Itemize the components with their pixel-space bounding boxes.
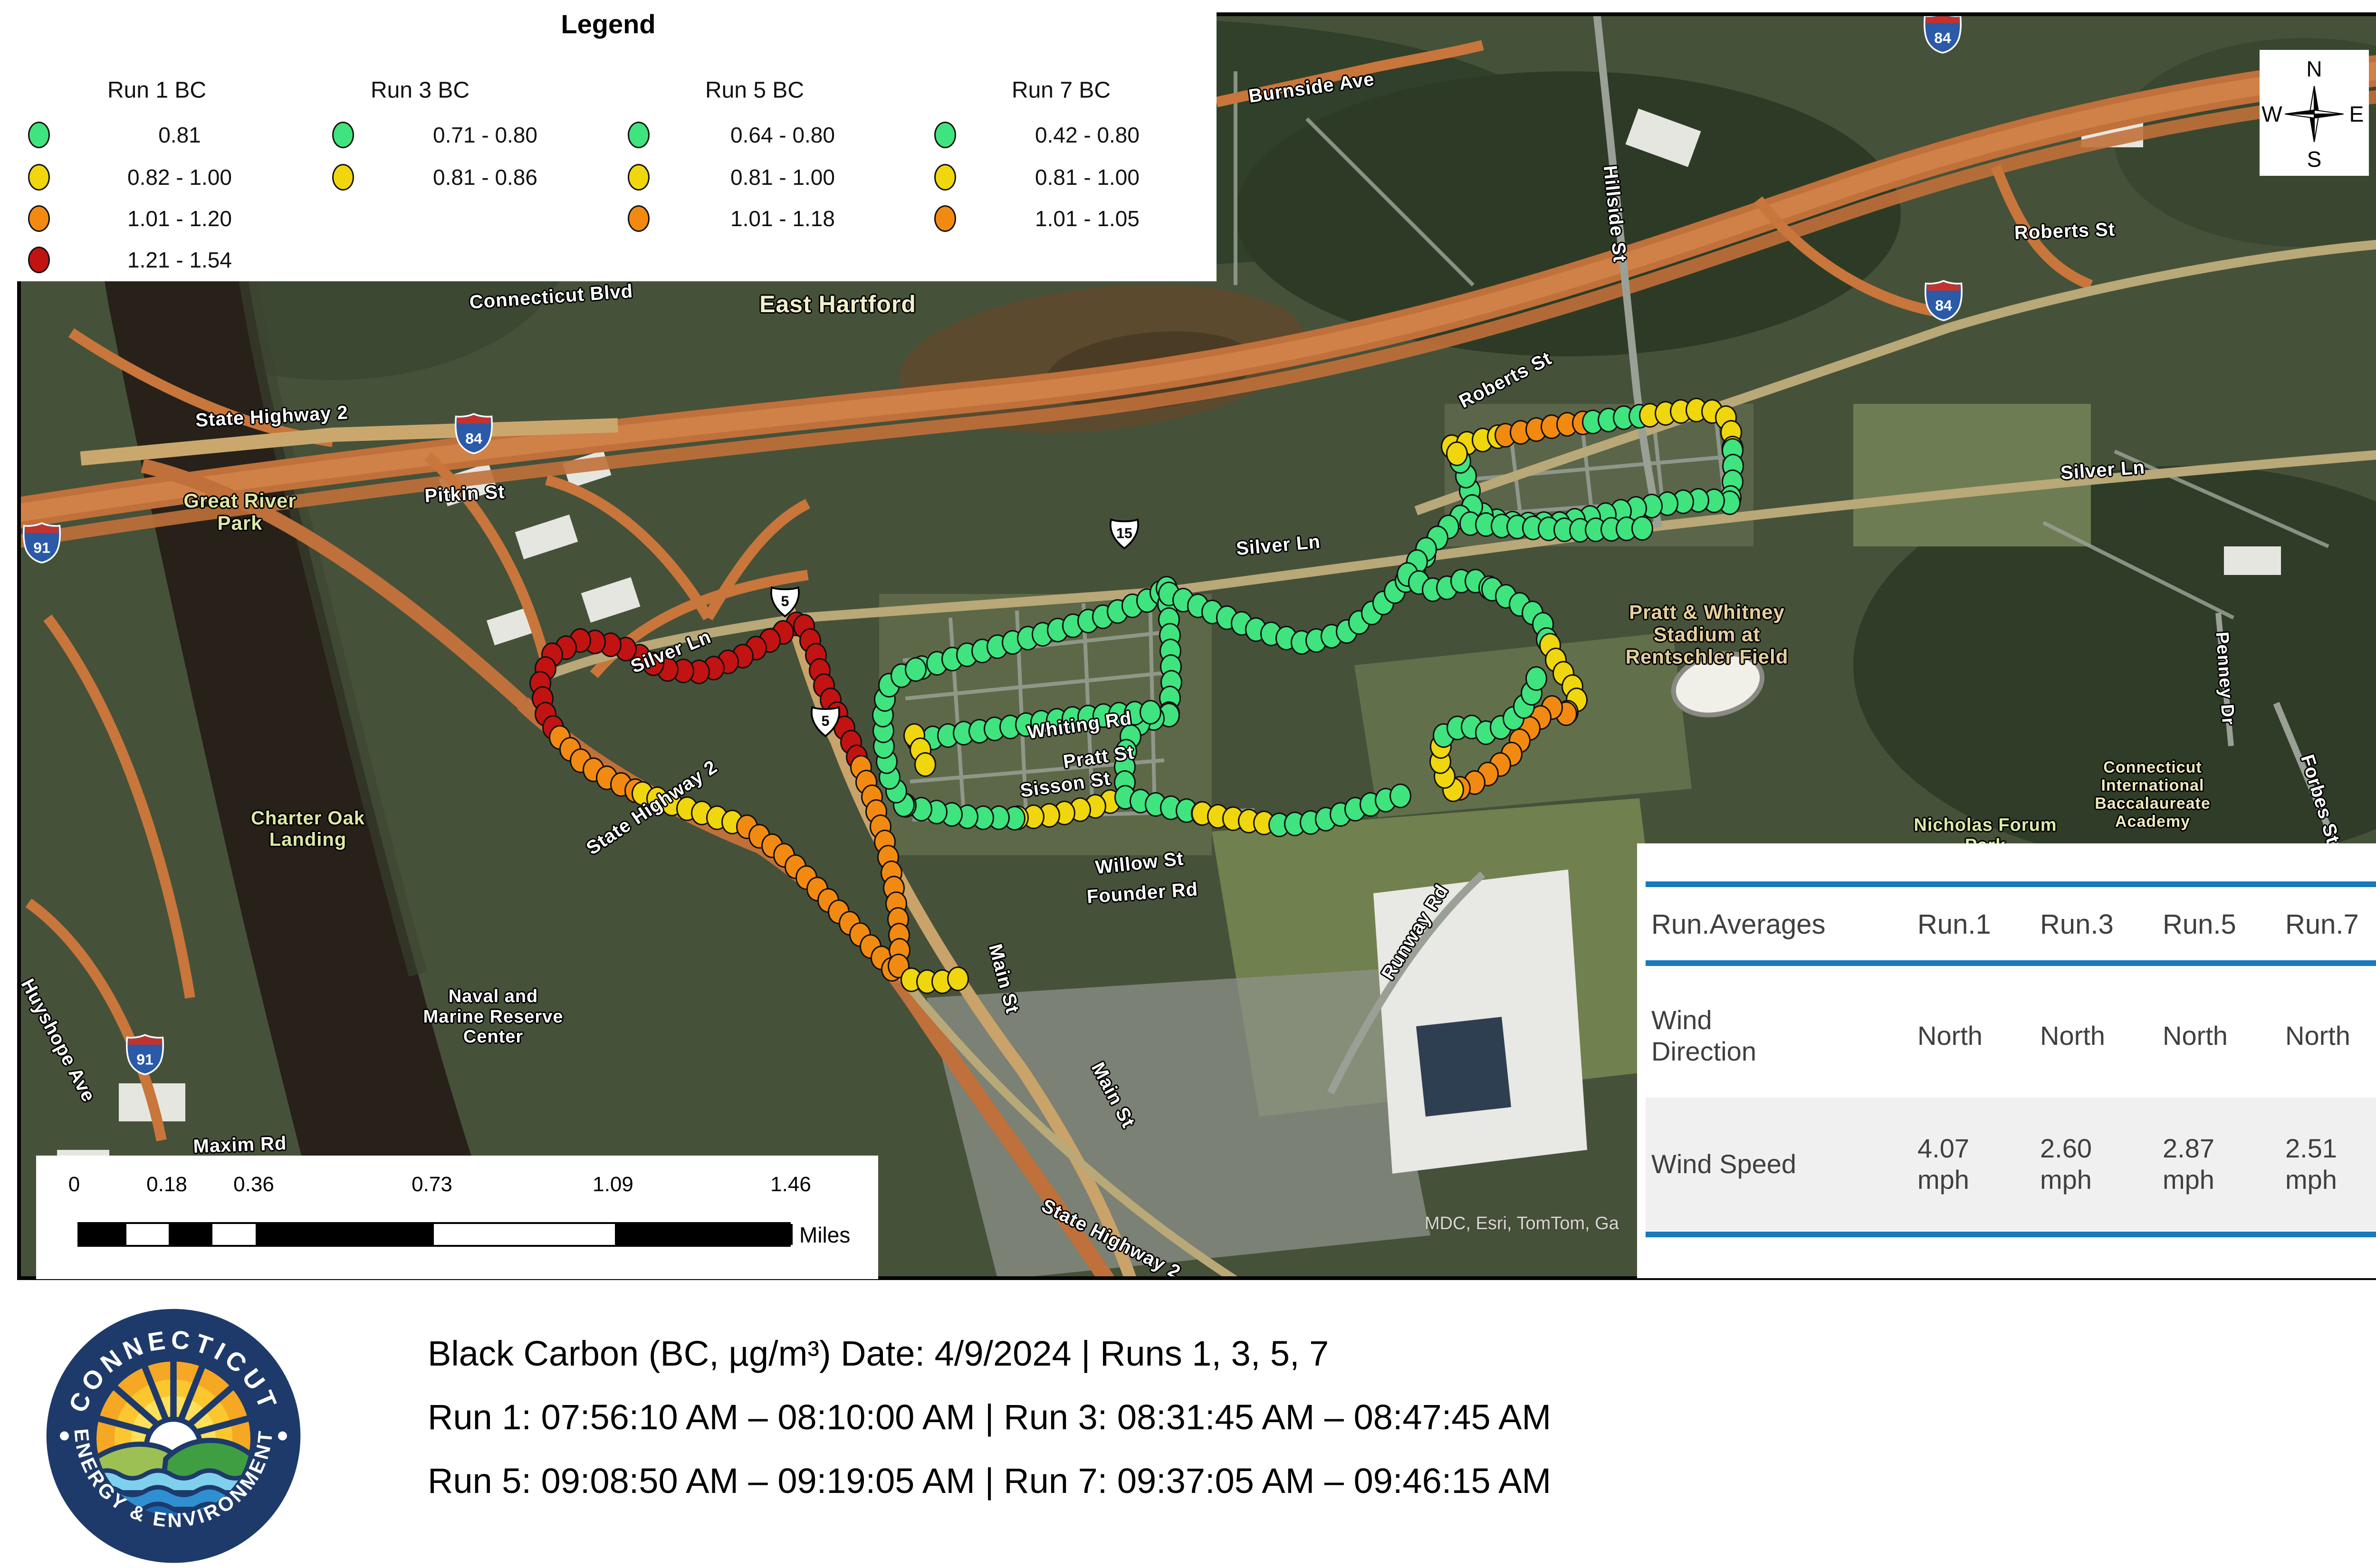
scale-tick-label: 0.36 — [233, 1173, 274, 1196]
scale-bar-segment — [615, 1224, 793, 1245]
map-label: Forbes St — [2296, 752, 2343, 846]
map-label: East Hartford — [759, 291, 916, 317]
legend-range-label: 0.71 - 0.80 — [433, 122, 537, 148]
legend-swatch — [332, 122, 354, 148]
legend-swatch — [628, 205, 650, 232]
scale-bar: 00.180.360.731.091.46 Miles — [36, 1156, 878, 1279]
scale-tick-label: 0 — [68, 1173, 80, 1196]
legend-range-label: 0.81 - 1.00 — [730, 164, 835, 190]
table-header-cell-3: Run.5 — [2163, 889, 2285, 960]
wind-direction-value-0: North — [1917, 981, 2040, 1090]
map-label: Sisson St — [1019, 768, 1112, 802]
map-label: State Highway 2 — [195, 402, 349, 431]
legend-column-header-run-0: Run 1 BC — [107, 77, 206, 104]
map-label: Runway Rd — [1378, 881, 1453, 984]
map-label: Main St — [1087, 1059, 1139, 1132]
legend-range-label: 0.82 - 1.00 — [127, 164, 232, 190]
caption-line-2: Run 1: 07:56:10 AM – 08:10:00 AM | Run 3… — [428, 1386, 1551, 1449]
map-label: Maxim Rd — [193, 1133, 287, 1157]
scale-bar-segment — [126, 1224, 169, 1245]
map-label: Main St — [984, 942, 1023, 1016]
scale-tick-label: 1.09 — [593, 1173, 633, 1196]
scale-bar-band — [77, 1222, 791, 1247]
caption-line-3: Run 5: 09:08:50 AM – 09:19:05 AM | Run 7… — [428, 1449, 1551, 1513]
legend-range-label: 1.01 - 1.20 — [127, 206, 232, 231]
scale-tick-label: 0.73 — [412, 1173, 452, 1196]
legend-swatch — [628, 122, 650, 148]
legend-swatch — [934, 122, 956, 148]
map-label: Silver Ln — [1235, 531, 1321, 560]
map-label: Connecticut International Baccalaureate … — [2095, 758, 2211, 831]
figure-caption: Black Carbon (BC, µg/m³) Date: 4/9/2024 … — [428, 1322, 1551, 1513]
wind-speed-value-1: 2.60 mph — [2040, 1102, 2163, 1226]
map-label: Roberts St — [2014, 219, 2116, 244]
legend-range-label: 0.81 — [158, 122, 201, 148]
map-label: Charter Oak Landing — [251, 808, 365, 851]
legend-swatch — [28, 164, 50, 191]
scale-bar-unit: Miles — [799, 1222, 850, 1248]
legend-swatch — [28, 122, 50, 148]
table-label-wind-direction: Wind Direction — [1651, 981, 1917, 1090]
legend-column-header-run-1: Run 3 BC — [371, 77, 469, 104]
table-bottom-rule — [1646, 1232, 2376, 1237]
legend-range-label: 0.81 - 0.86 — [433, 164, 537, 190]
map-label: Pratt & Whitney Stadium at Rentschler Fi… — [1626, 601, 1789, 668]
legend-swatch — [934, 205, 956, 232]
table-header-cell-4: Run.7 — [2285, 889, 2376, 960]
ct-energy-environment-logo: CONNECTICUT ENERGY & ENVIRONMENT — [45, 1308, 302, 1564]
wind-direction-value-2: North — [2163, 981, 2285, 1090]
scale-bar-segment — [256, 1224, 434, 1245]
table-header-cell-2: Run.3 — [2040, 889, 2163, 960]
wind-direction-value-3: North — [2285, 981, 2376, 1090]
map-label: Silver Ln — [628, 626, 714, 678]
legend-range-label: 0.42 - 0.80 — [1035, 122, 1140, 148]
legend-column-header-run-3: Run 7 BC — [1012, 77, 1111, 104]
compass-south-label: S — [2307, 146, 2322, 172]
map-label: Whiting Rd — [1026, 708, 1133, 743]
compass-west-label: W — [2261, 101, 2282, 127]
table-label-wind-speed: Wind Speed — [1651, 1102, 1917, 1226]
map-label: Silver Ln — [2060, 457, 2146, 484]
wind-speed-value-0: 4.07 mph — [1917, 1102, 2040, 1226]
table-row-wind-speed: Wind Speed4.07 mph2.60 mph2.87 mph2.51 m… — [1651, 1102, 2376, 1226]
wind-direction-value-1: North — [2040, 981, 2163, 1090]
map-label: Founder Rd — [1086, 879, 1199, 908]
scale-bar-segment — [212, 1224, 256, 1245]
logo-badge-icon: CONNECTICUT ENERGY & ENVIRONMENT — [45, 1308, 302, 1564]
compass-rose: N S W E — [2260, 50, 2369, 176]
legend-swatch — [28, 247, 50, 273]
map-label: Pitkin St — [424, 481, 505, 507]
legend-range-label: 1.01 - 1.18 — [730, 206, 835, 231]
caption-line-1: Black Carbon (BC, µg/m³) Date: 4/9/2024 … — [428, 1322, 1551, 1386]
scale-bar-segment — [434, 1224, 615, 1245]
legend-column-header-run-2: Run 5 BC — [705, 77, 804, 104]
map-label: Great River Park — [183, 489, 296, 534]
legend-panel: Legend Run 1 BC0.810.82 - 1.001.01 - 1.2… — [0, 0, 1217, 281]
table-top-rule — [1646, 881, 2376, 887]
legend-swatch — [28, 205, 50, 232]
scale-bar-segment — [79, 1224, 126, 1245]
map-label: Naval and Marine Reserve Center — [423, 986, 564, 1047]
compass-north-label: N — [2306, 56, 2322, 82]
legend-swatch — [332, 164, 354, 191]
table-header-row: Run.AveragesRun.1Run.3Run.5Run.7 — [1651, 889, 2376, 960]
table-header-cell-0: Run.Averages — [1651, 889, 1917, 960]
legend-range-label: 0.81 - 1.00 — [1035, 164, 1140, 190]
map-label: Huyshope Ave — [17, 975, 99, 1106]
table-row-wind-direction: Wind DirectionNorthNorthNorthNorth — [1651, 981, 2376, 1090]
map-label: State Highway 2 — [1038, 1195, 1184, 1280]
legend-swatch — [628, 164, 650, 191]
map-label: Willow St — [1094, 848, 1185, 879]
map-label: Pratt St — [1062, 742, 1135, 773]
legend-title: Legend — [0, 9, 1217, 39]
table-header-rule — [1646, 960, 2376, 966]
scale-bar-segment — [169, 1224, 212, 1245]
scale-tick-label: 0.18 — [146, 1173, 187, 1196]
table-header-cell-1: Run.1 — [1917, 889, 2040, 960]
map-label: Burnside Ave — [1247, 68, 1376, 107]
map-label: Hillside St — [1599, 164, 1630, 263]
legend-range-label: 0.64 - 0.80 — [730, 122, 835, 148]
scale-tick-label: 1.46 — [770, 1173, 811, 1196]
map-label: State Highway 2 — [583, 756, 721, 859]
page: { "colors":{"green":"#3FE47E","yellow":"… — [0, 0, 2376, 1568]
wind-speed-value-3: 2.51 mph — [2285, 1102, 2376, 1226]
map-attribution: MDC, Esri, TomTom, Ga — [1425, 1214, 1619, 1234]
wind-speed-value-2: 2.87 mph — [2163, 1102, 2285, 1226]
legend-range-label: 1.21 - 1.54 — [127, 247, 232, 273]
compass-east-label: E — [2349, 101, 2364, 127]
compass-star-icon — [2281, 81, 2347, 147]
map-label: Penney Dr — [2212, 631, 2238, 726]
map-label: Connecticut Blvd — [469, 281, 633, 314]
map-label: Roberts St — [1456, 348, 1555, 412]
run-averages-table: Run.AveragesRun.1Run.3Run.5Run.7 Wind Di… — [1637, 843, 2376, 1278]
legend-range-label: 1.01 - 1.05 — [1035, 206, 1140, 231]
legend-swatch — [934, 164, 956, 191]
